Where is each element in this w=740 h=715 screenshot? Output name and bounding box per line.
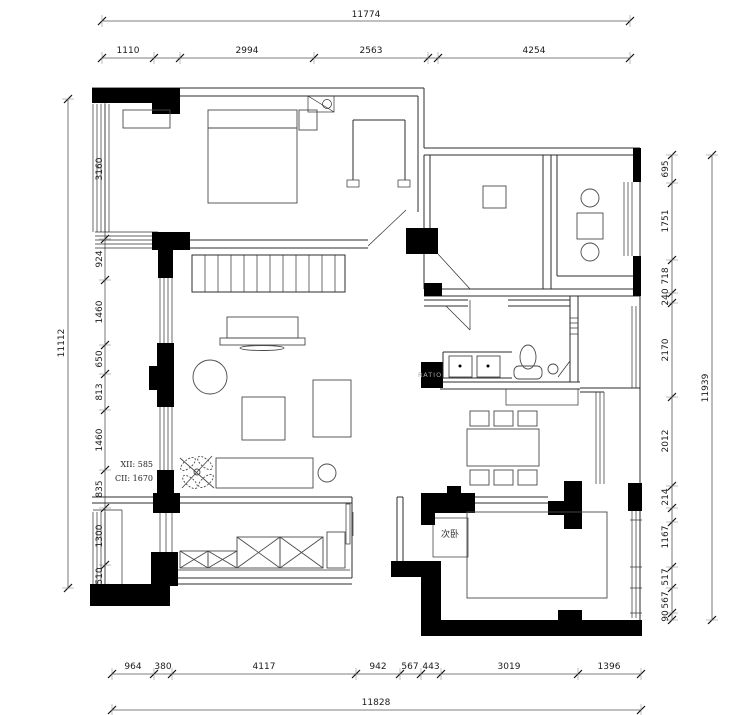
armchair [313, 380, 351, 437]
dim-bottom-seg-2: 4117 [253, 662, 276, 672]
dims-top: 11774 1110 2994 2563 4254 [117, 10, 546, 56]
dim-left-seg-1: 924 [95, 250, 105, 267]
bed [467, 512, 607, 598]
dining-set [467, 411, 539, 485]
dining-table [467, 429, 539, 466]
dim-right-seg-3: 240 [661, 288, 671, 305]
dim-right-seg-10: 90 [661, 610, 671, 622]
walls [92, 88, 640, 620]
annotation-line-2: CII: 1670 [115, 474, 153, 483]
bathroom-fixtures [443, 345, 570, 379]
dim-left-seg-5: 1460 [95, 428, 105, 451]
second-bedroom [467, 512, 607, 598]
plant-icon [179, 454, 216, 491]
dim-left-seg-7: 1300 [95, 524, 105, 547]
dim-bottom-seg-3: 942 [369, 662, 386, 672]
watermark: RATIO [418, 371, 442, 379]
sofa [216, 458, 313, 488]
dim-bottom-seg-7: 1396 [598, 662, 621, 672]
dim-left-seg-2: 1460 [95, 300, 105, 323]
dim-left-total: 11112 [57, 329, 67, 358]
wall-blocks [90, 88, 642, 636]
dims-left: 11112 3160 924 1460 650 813 1460 835 130… [57, 157, 105, 584]
dim-bottom-seg-4: 567 [401, 662, 418, 672]
dim-left-seg-8: 510 [95, 567, 105, 584]
toilet-icon [514, 345, 542, 379]
dim-top-seg-2: 2563 [360, 46, 383, 56]
dim-right-seg-4: 2170 [661, 338, 671, 361]
coffee-table [242, 397, 285, 440]
dim-right-seg-1: 1751 [661, 210, 671, 233]
dim-top-seg-3: 4254 [523, 46, 546, 56]
side-table [318, 464, 336, 482]
balcony-bench [180, 532, 345, 568]
floor-plan-drawing: 11774 1110 2994 2563 4254 11112 3160 924… [0, 0, 740, 715]
annotation-line-1: XII: 585 [120, 460, 153, 469]
dim-bottom-seg-0: 964 [124, 662, 141, 672]
dim-bottom-seg-5: 443 [422, 662, 439, 672]
dim-right-seg-6: 214 [661, 488, 671, 505]
dim-right-seg-0: 695 [661, 160, 671, 177]
dim-right-seg-7: 1167 [661, 526, 671, 549]
room-label: 次卧 [441, 528, 459, 540]
dim-left-seg-0: 3160 [95, 157, 105, 180]
dim-left-seg-6: 835 [95, 480, 105, 497]
tv-unit [227, 317, 298, 338]
dim-top-seg-1: 2994 [236, 46, 259, 56]
dim-right-total: 11939 [701, 373, 711, 402]
floor-plan-canvas: 11774 1110 2994 2563 4254 11112 3160 924… [0, 0, 740, 715]
dims-bottom: 11828 964 380 4117 942 567 443 3019 1396 [124, 662, 620, 708]
round-chair [193, 360, 227, 394]
master-bedroom-furniture [123, 110, 317, 203]
dim-left-seg-4: 813 [95, 383, 105, 400]
dims-right: 11939 695 1751 718 240 2170 2012 214 116… [661, 160, 711, 621]
dim-top-total: 11774 [352, 10, 381, 20]
dim-left-seg-3: 650 [95, 350, 105, 367]
dim-right-seg-8: 517 [661, 568, 671, 585]
dim-top-seg-0: 1110 [117, 46, 140, 56]
dim-right-seg-9: 567 [661, 591, 671, 608]
area-annotation: XII: 585 CII: 1670 [115, 460, 153, 483]
dim-right-seg-2: 718 [661, 267, 671, 284]
stairs [192, 255, 345, 292]
dim-right-seg-5: 2012 [661, 430, 671, 453]
dim-bottom-seg-1: 380 [154, 662, 171, 672]
dim-bottom-total: 11828 [362, 698, 391, 708]
dim-bottom-seg-6: 3019 [498, 662, 521, 672]
windows [93, 104, 642, 618]
living-room-furniture [193, 317, 351, 488]
